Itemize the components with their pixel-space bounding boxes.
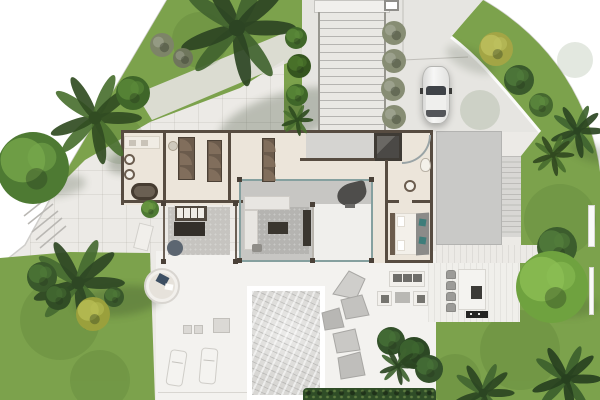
bush-midsouth-3: [415, 355, 443, 383]
palm-se-1: [452, 362, 515, 400]
tree-west: [0, 132, 69, 204]
bush-sw-3: [104, 287, 124, 307]
palm-nw: [179, 0, 296, 88]
bush-sw-2: [45, 284, 71, 310]
palm-se-2: [531, 345, 600, 400]
bush-ne-yellow: [479, 32, 513, 66]
planter-bush-2: [287, 54, 311, 78]
bush-boundary-2: [173, 48, 193, 68]
planter-bush-1: [285, 27, 307, 49]
planter-fern: [281, 104, 313, 136]
bush-sw-yellow: [76, 297, 110, 331]
stair-bush-1: [382, 21, 406, 45]
stair-bush-4: [382, 105, 406, 129]
bush-ne-1: [504, 65, 534, 95]
vegetation-layer: [0, 0, 600, 400]
bush-boundary-1: [150, 33, 174, 57]
stair-bush-3: [381, 77, 405, 101]
tree-se: [516, 251, 588, 323]
site-plan-scene: [0, 0, 600, 400]
potted-plant-terrace: [141, 200, 159, 218]
planter-bush-3: [286, 84, 308, 106]
bush-ne-2: [529, 93, 553, 117]
stair-bush-2: [382, 49, 406, 73]
bush-nw: [116, 76, 150, 110]
